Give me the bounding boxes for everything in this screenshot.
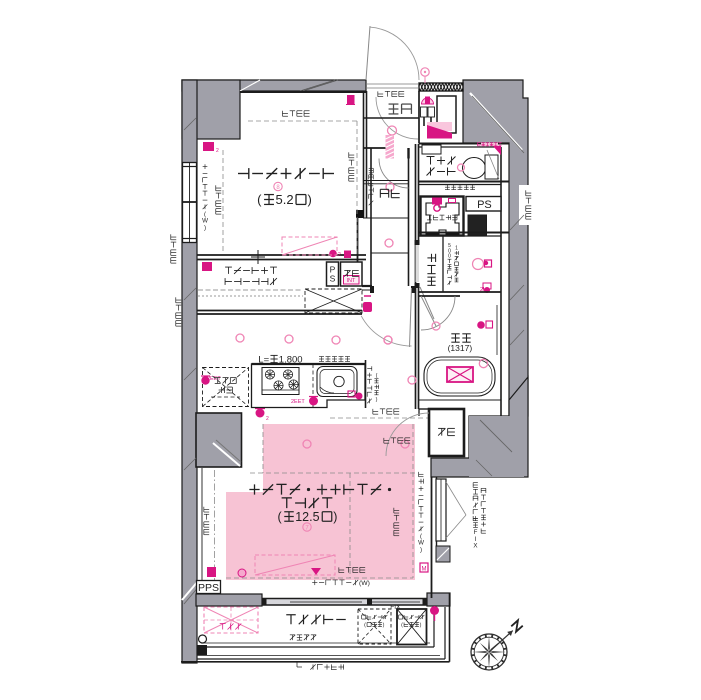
svg-text:1.800: 1.800: [279, 354, 303, 365]
svg-text:1: 1: [455, 246, 458, 252]
svg-text:M: M: [422, 567, 427, 573]
svg-text:): ): [376, 397, 378, 403]
svg-text:): ): [383, 622, 385, 628]
svg-text:FIX: FIX: [390, 604, 401, 611]
svg-text:(: (: [257, 192, 262, 207]
svg-text:(: (: [401, 622, 403, 628]
svg-text:X: X: [473, 543, 477, 550]
svg-text:2: 2: [338, 252, 341, 258]
svg-text:): ): [333, 510, 337, 524]
svg-text:2L: 2L: [480, 287, 486, 293]
svg-text:): ): [420, 622, 422, 628]
svg-text:L=: L=: [258, 354, 269, 365]
svg-text:PPS: PPS: [198, 582, 219, 594]
svg-text:PS: PS: [477, 199, 492, 211]
svg-text:(: (: [364, 622, 366, 628]
svg-text:2: 2: [216, 148, 219, 154]
svg-text:(1317): (1317): [448, 343, 473, 353]
svg-text:S: S: [330, 274, 336, 284]
svg-text:(: (: [376, 373, 378, 379]
svg-text:): ): [420, 546, 422, 553]
svg-text:2EET: 2EET: [291, 399, 305, 405]
svg-text:(W): (W): [359, 580, 370, 587]
svg-text:2: 2: [266, 416, 269, 422]
svg-text:12.5: 12.5: [295, 510, 319, 524]
svg-text:0: 0: [448, 254, 451, 260]
svg-text:5.2: 5.2: [276, 192, 294, 207]
svg-text:): ): [308, 192, 312, 207]
svg-text:): ): [204, 224, 206, 231]
svg-text:INT: INT: [347, 278, 357, 284]
